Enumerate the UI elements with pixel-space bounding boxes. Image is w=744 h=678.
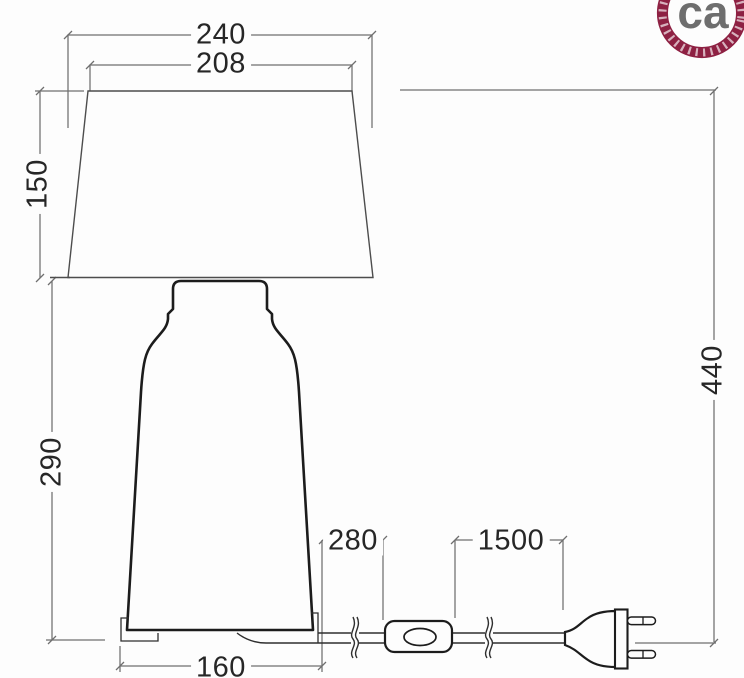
plug-face-plate	[615, 610, 628, 669]
switch-button	[404, 629, 436, 646]
dim-label-cable-switch-to-plug: 1500	[473, 527, 550, 556]
lampshade-trapezoid	[68, 91, 373, 278]
plug-bell-body	[565, 611, 616, 667]
dim-label-cable-base-to-switch: 280	[323, 527, 383, 556]
lamp-body-outline	[127, 281, 313, 630]
dim-total-height-line	[400, 90, 716, 643]
dim-label-shade-top-width: 208	[191, 50, 251, 79]
cable-break-symbol-right	[486, 617, 493, 658]
lampshade-outline	[50, 91, 373, 278]
cable-segment-to-plug	[493, 633, 565, 643]
dim-label-body-height: 290	[38, 432, 67, 492]
brand-logo: ca	[656, 0, 744, 59]
dim-label-shade-height: 150	[24, 154, 53, 214]
logo-text: ca	[677, 0, 729, 38]
power-plug	[565, 610, 656, 669]
drawing-canvas	[0, 0, 744, 678]
cable-segment-to-switch	[359, 633, 385, 643]
plug-pin-top	[628, 617, 656, 625]
dim-label-total-height: 440	[699, 340, 728, 400]
lamp-body-path	[127, 281, 313, 630]
plug-pin-bottom	[628, 651, 656, 659]
dim-label-base-width: 160	[191, 654, 251, 678]
brand-logo-icon: ca	[656, 0, 744, 59]
dim-label-shade-bottom-width: 240	[191, 21, 251, 50]
inline-switch	[385, 621, 452, 652]
cable-segment-from-switch	[452, 633, 485, 643]
cable-segment-base	[237, 633, 351, 643]
lamp-dimension-drawing: 240 208 150 290 440 160 280 1500 ca	[0, 0, 744, 678]
cable-break-symbol-left	[352, 617, 359, 658]
